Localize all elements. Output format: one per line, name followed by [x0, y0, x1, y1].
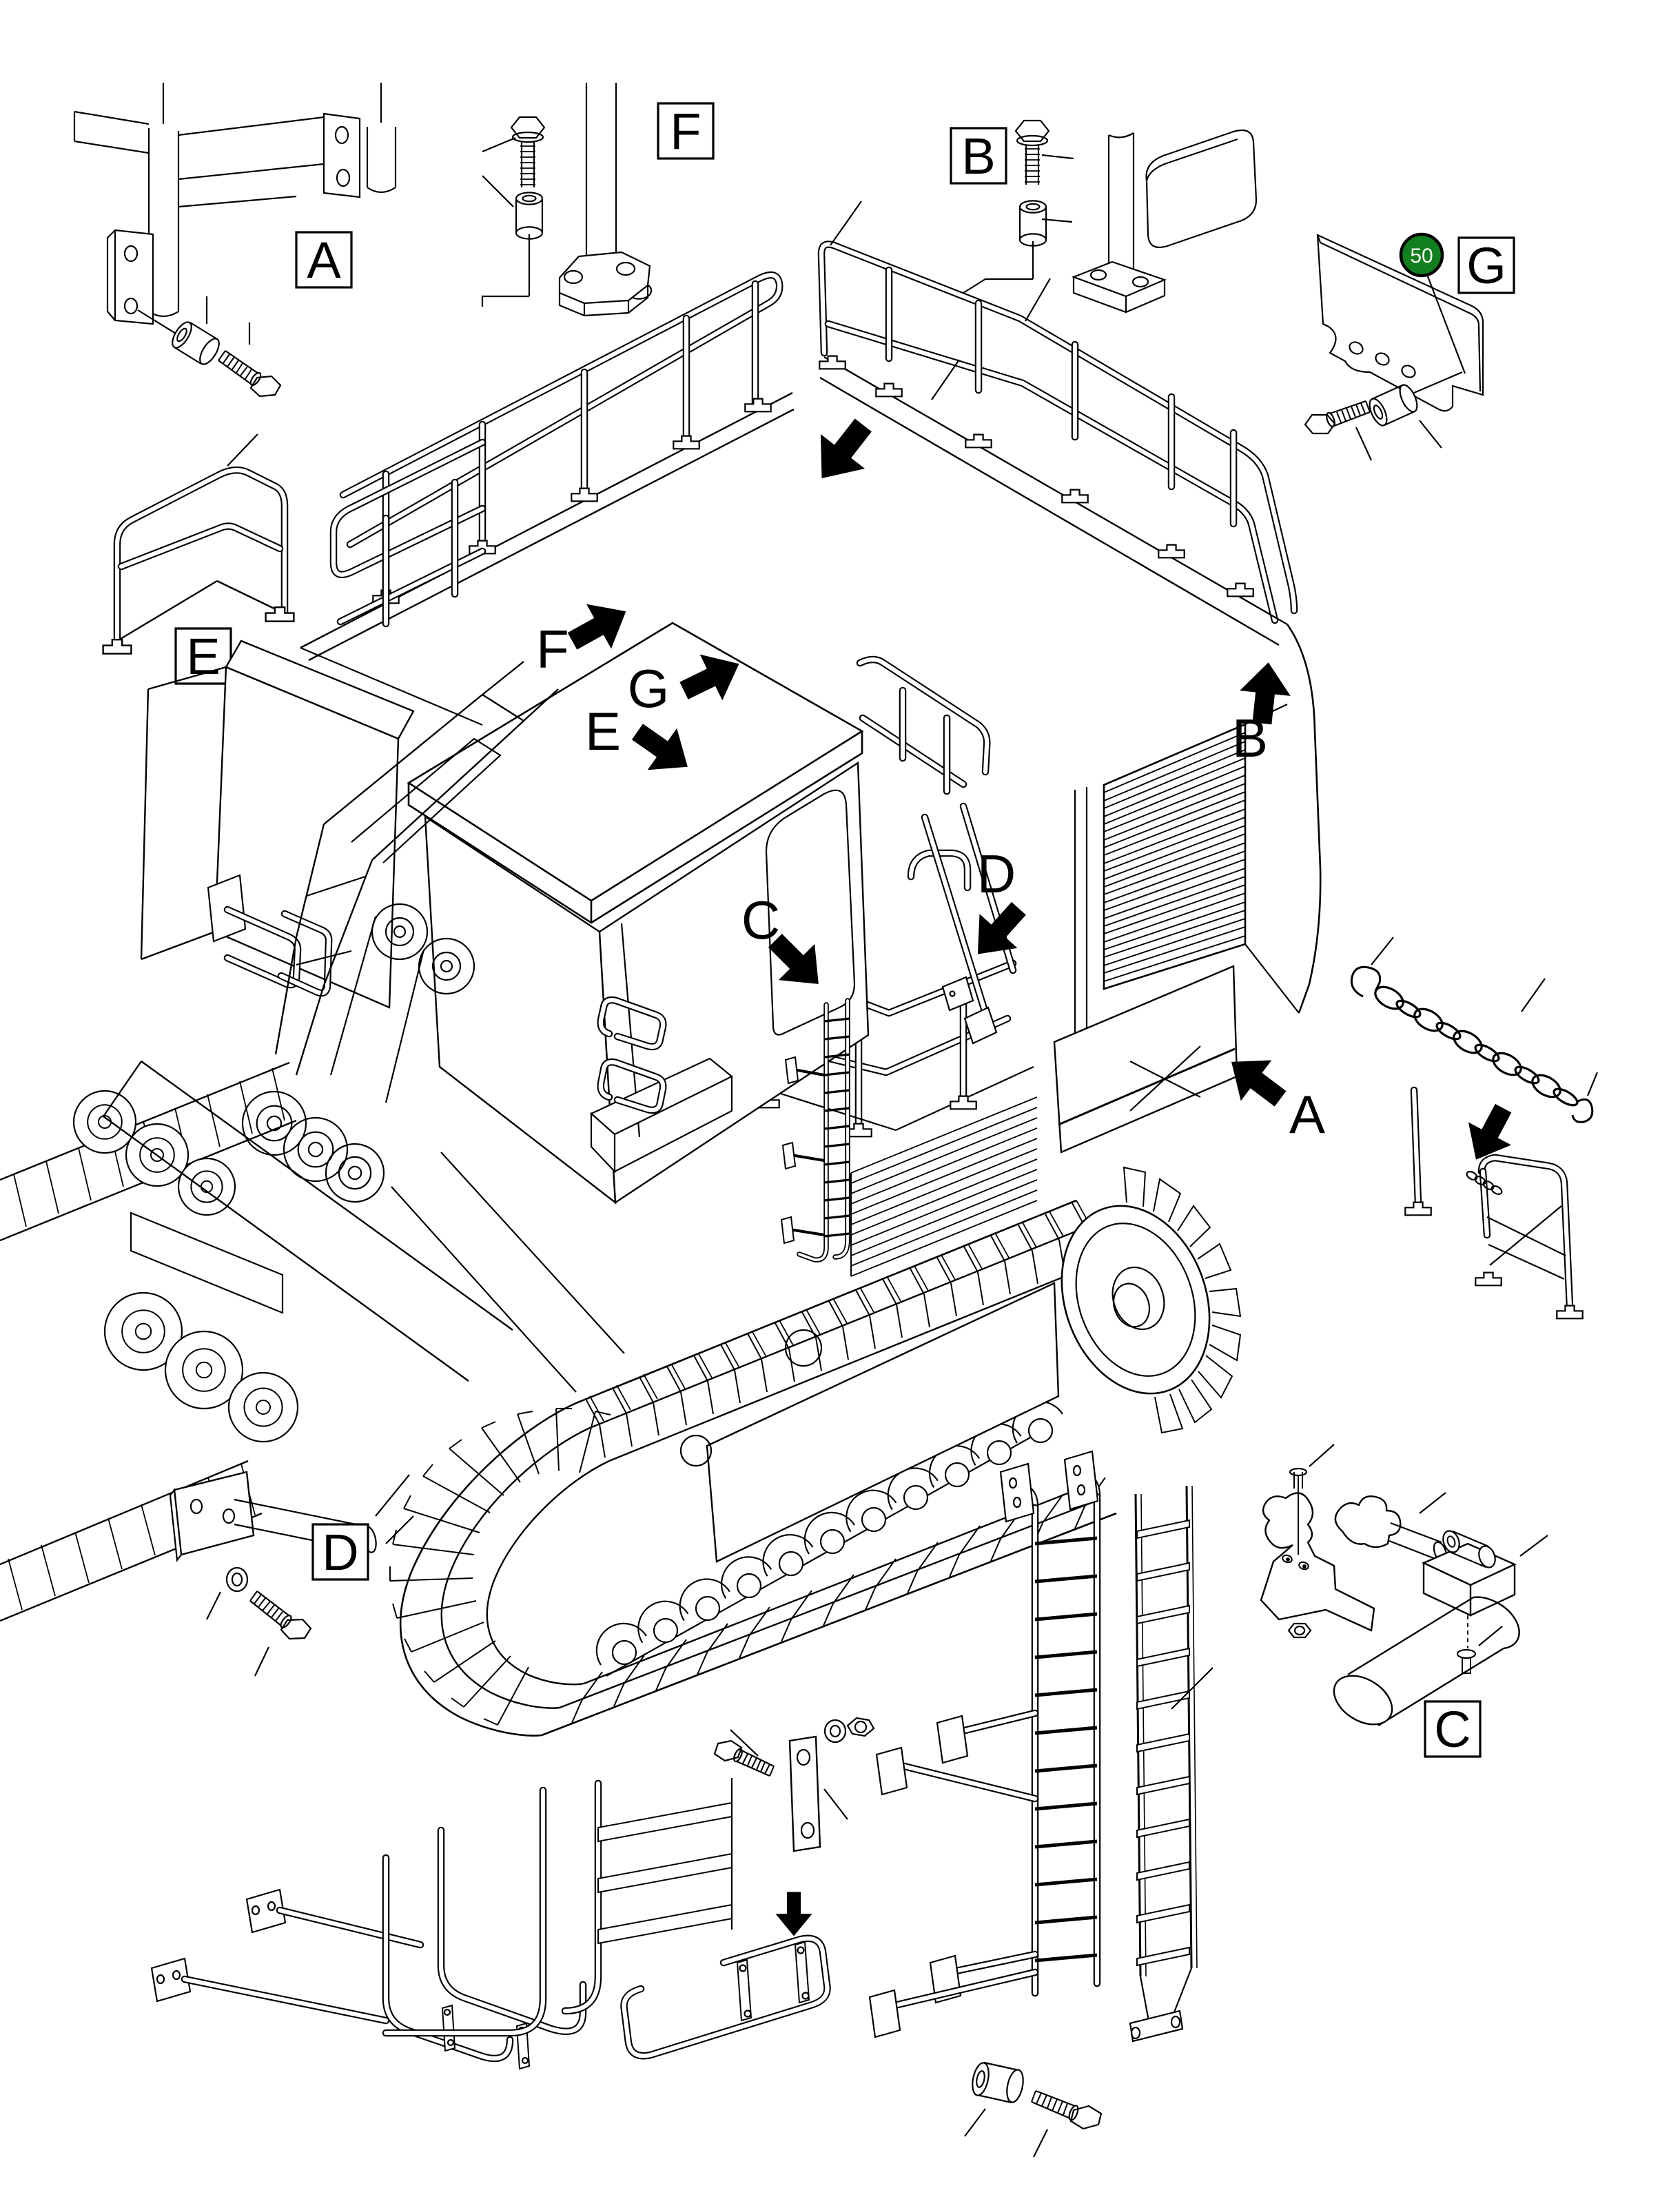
- svg-text:G: G: [628, 658, 670, 719]
- svg-text:B: B: [961, 127, 995, 185]
- svg-text:50: 50: [1410, 245, 1433, 267]
- svg-text:A: A: [307, 232, 341, 289]
- svg-text:E: E: [585, 701, 621, 761]
- svg-text:C: C: [741, 890, 780, 950]
- svg-text:D: D: [977, 843, 1016, 904]
- svg-text:A: A: [1289, 1084, 1325, 1145]
- svg-text:F: F: [670, 103, 701, 160]
- svg-text:F: F: [536, 619, 569, 679]
- svg-text:D: D: [322, 1524, 358, 1581]
- svg-text:C: C: [1434, 1701, 1471, 1758]
- svg-text:G: G: [1466, 237, 1506, 294]
